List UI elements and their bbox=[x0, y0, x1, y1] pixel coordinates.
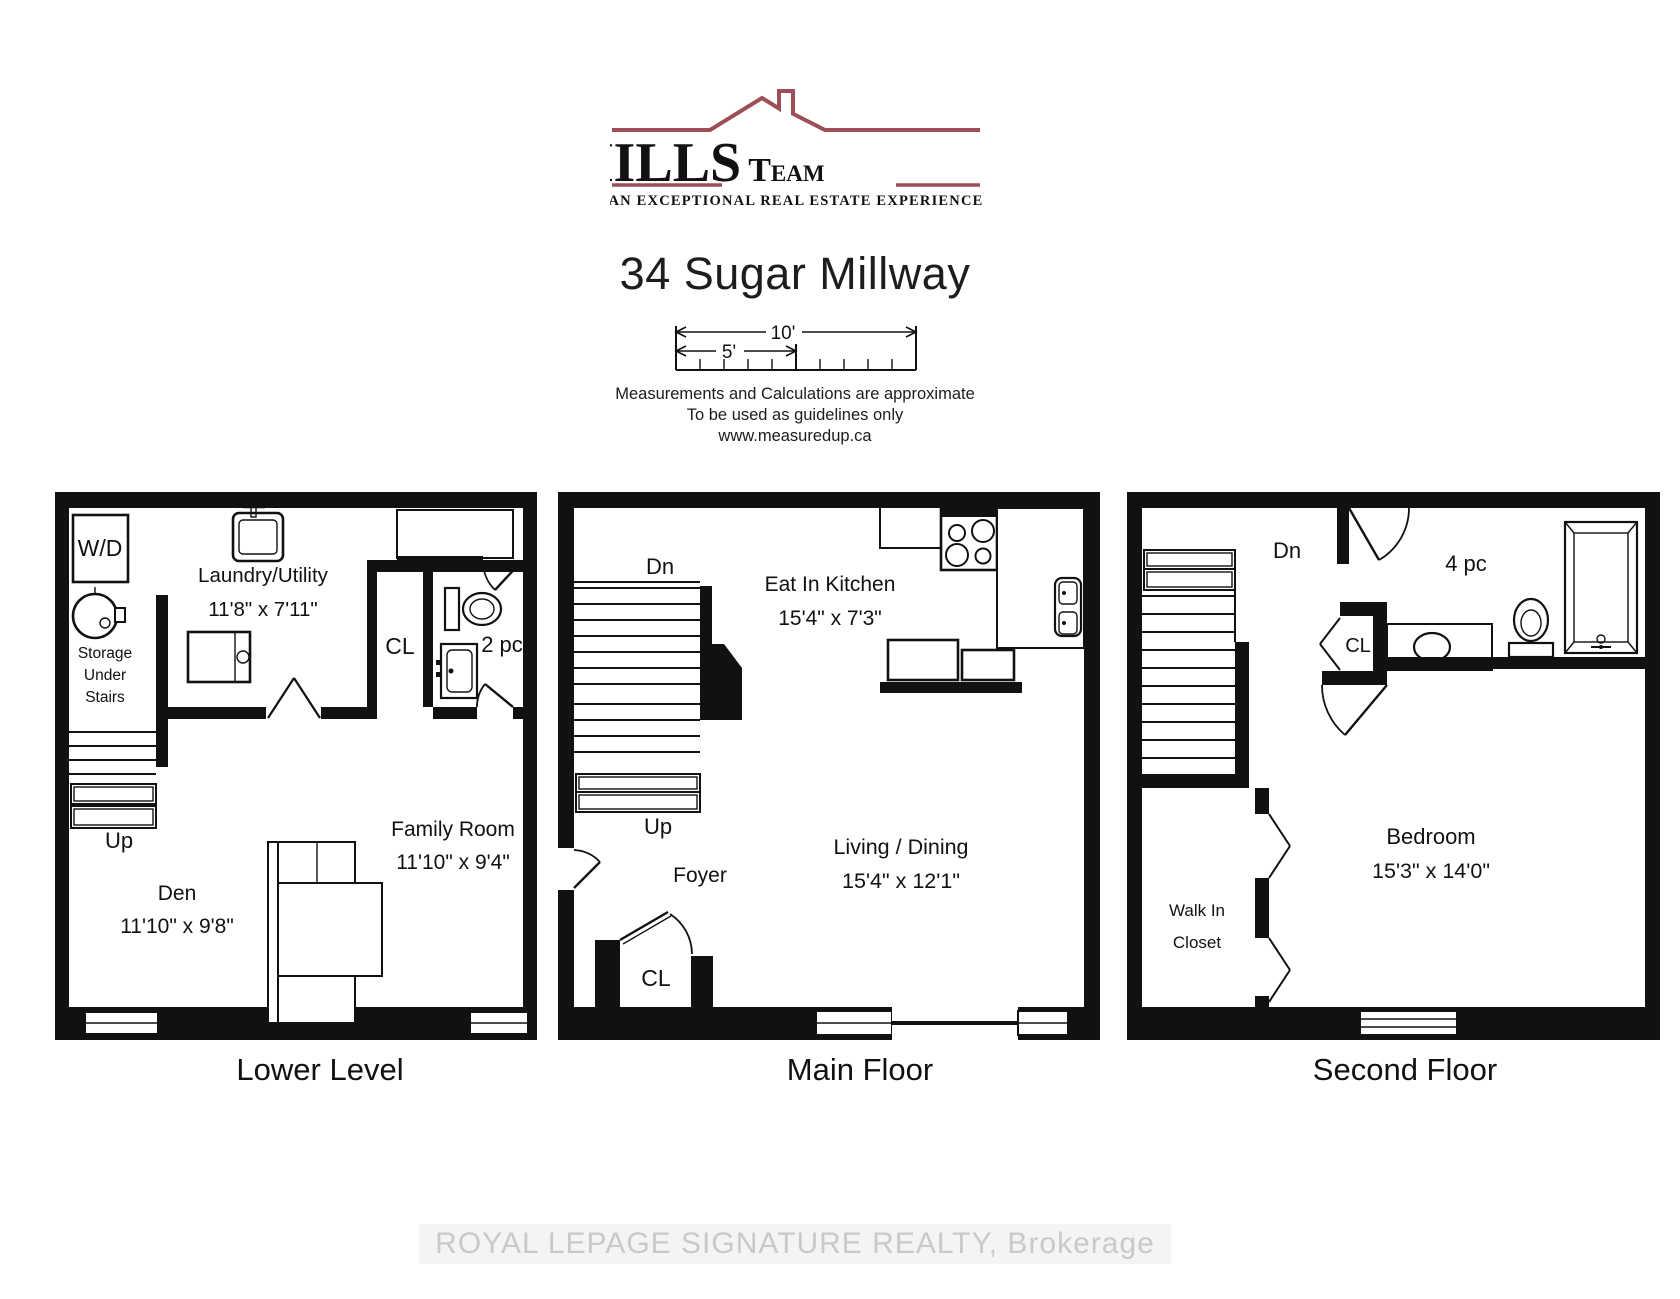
washer-icon bbox=[188, 632, 250, 682]
logo-mills: MILLS bbox=[610, 132, 741, 194]
lower-bath-label: 2 pc bbox=[481, 632, 523, 657]
logo-team-initial: T bbox=[748, 152, 771, 189]
wic-bifold-doors bbox=[1269, 814, 1290, 1002]
mills-team-logo-art: THEMILLSTEAM AN EXCEPTIONAL REAL ESTATE … bbox=[610, 86, 982, 212]
kitchen-dim: 15'4" x 7'3" bbox=[778, 607, 882, 630]
main-dn-label: Dn bbox=[646, 554, 674, 579]
bath-door-stub bbox=[1337, 508, 1349, 564]
lower-nook bbox=[397, 510, 513, 558]
disclaimer-line3: www.measuredup.ca bbox=[455, 426, 1135, 447]
family-room-dim: 11'10" x 9'4" bbox=[396, 851, 510, 874]
bedroom-door-arc bbox=[1322, 685, 1387, 735]
water-heater-icon bbox=[73, 587, 125, 638]
bath-sink-icon bbox=[436, 644, 477, 698]
disclaimer-line2: To be used as guidelines only bbox=[455, 405, 1135, 426]
lower-stairs bbox=[69, 732, 156, 828]
front-door-opening bbox=[558, 848, 574, 890]
laundry-dim: 11'8" x 7'11" bbox=[208, 598, 317, 621]
scale-bar: 10' 5' bbox=[672, 318, 920, 380]
den-dim: 11'10" x 9'8" bbox=[120, 915, 234, 938]
double-sink-icon bbox=[1055, 578, 1081, 636]
living-dim: 15'4" x 12'1" bbox=[842, 869, 960, 893]
bedroom-dim: 15'3" x 14'0" bbox=[1372, 859, 1490, 883]
second-bath-label: 4 pc bbox=[1445, 551, 1487, 576]
bath-door-arc bbox=[1349, 508, 1409, 560]
main-stairs bbox=[574, 582, 742, 812]
main-floor-plan: Dn Up Eat In Kitchen 15'4" x 7'3" F bbox=[558, 492, 1100, 1040]
scale-bar-art: 10' 5' bbox=[672, 318, 920, 380]
scale-10ft-label: 10' bbox=[771, 323, 796, 344]
main-up-label: Up bbox=[644, 814, 672, 839]
wic-walls bbox=[1255, 788, 1269, 1007]
logo-wordmark: THEMILLSTEAM bbox=[610, 132, 825, 194]
bathtub-icon bbox=[1565, 522, 1637, 653]
disclaimer: Measurements and Calculations are approx… bbox=[455, 384, 1135, 447]
lower-closet-label: CL bbox=[385, 633, 415, 659]
storage-label-2: Under bbox=[84, 667, 126, 684]
lower-level-plan: W/D Storage Under Stairs Laundry/Utility… bbox=[55, 492, 537, 1040]
wall-unit bbox=[268, 842, 382, 1023]
bath-bottom-wall bbox=[1387, 657, 1645, 669]
scale-5ft-label: 5' bbox=[722, 342, 736, 363]
disclaimer-line1: Measurements and Calculations are approx… bbox=[455, 384, 1135, 405]
main-floor-title: Main Floor bbox=[700, 1052, 1020, 1088]
toilet-icon bbox=[445, 588, 501, 630]
brokerage-watermark-text: ROYAL LEPAGE SIGNATURE REALTY, Brokerage bbox=[419, 1224, 1171, 1264]
second-floor-plan: Dn CL 4 pc bbox=[1127, 492, 1660, 1040]
stove-icon bbox=[941, 508, 997, 570]
laundry-label: Laundry/Utility bbox=[198, 564, 329, 587]
storage-label-1: Storage bbox=[78, 645, 132, 662]
arrow-10ft bbox=[676, 327, 916, 337]
kitchen-counter-edge bbox=[880, 508, 941, 548]
second-floor-title: Second Floor bbox=[1245, 1052, 1565, 1088]
storage-label-3: Stairs bbox=[85, 689, 125, 706]
floorplan-page: THEMILLSTEAM AN EXCEPTIONAL REAL ESTATE … bbox=[0, 0, 1680, 1299]
logo-tagline: AN EXCEPTIONAL REAL ESTATE EXPERIENCE bbox=[610, 193, 982, 209]
living-label: Living / Dining bbox=[833, 835, 968, 859]
main-closet-label: CL bbox=[641, 965, 671, 991]
second-closet-label: CL bbox=[1345, 635, 1371, 657]
second-window bbox=[1360, 1011, 1457, 1035]
wic-label-2: Closet bbox=[1173, 933, 1221, 952]
main-windows bbox=[816, 1007, 1068, 1040]
logo-team-rest: EAM bbox=[771, 161, 825, 186]
utility-sink-icon bbox=[233, 507, 283, 561]
lower-up-label: Up bbox=[105, 828, 133, 853]
laundry-bifold-door bbox=[268, 678, 320, 718]
wd-label: W/D bbox=[78, 535, 123, 561]
mills-team-logo: THEMILLSTEAM AN EXCEPTIONAL REAL ESTATE … bbox=[610, 86, 982, 212]
front-door-arc bbox=[574, 850, 600, 888]
lower-level-title: Lower Level bbox=[160, 1052, 480, 1088]
second-toilet-icon bbox=[1509, 599, 1553, 657]
family-room-label: Family Room bbox=[391, 818, 515, 841]
roofline-icon bbox=[612, 91, 980, 130]
wic-label-1: Walk In bbox=[1169, 901, 1225, 920]
second-dn-label: Dn bbox=[1273, 538, 1301, 563]
second-stairs bbox=[1142, 550, 1249, 788]
page-title: 34 Sugar Millway bbox=[455, 248, 1135, 300]
bath-door-arc bbox=[477, 684, 513, 707]
bedroom-label: Bedroom bbox=[1386, 824, 1475, 849]
den-label: Den bbox=[158, 882, 197, 905]
second-closet-bifold bbox=[1320, 618, 1340, 670]
foyer-label: Foyer bbox=[673, 864, 727, 887]
main-closet-door bbox=[620, 912, 692, 954]
kitchen-label: Eat In Kitchen bbox=[765, 573, 896, 596]
brokerage-watermark: ROYAL LEPAGE SIGNATURE REALTY, Brokerage bbox=[400, 1224, 1190, 1264]
